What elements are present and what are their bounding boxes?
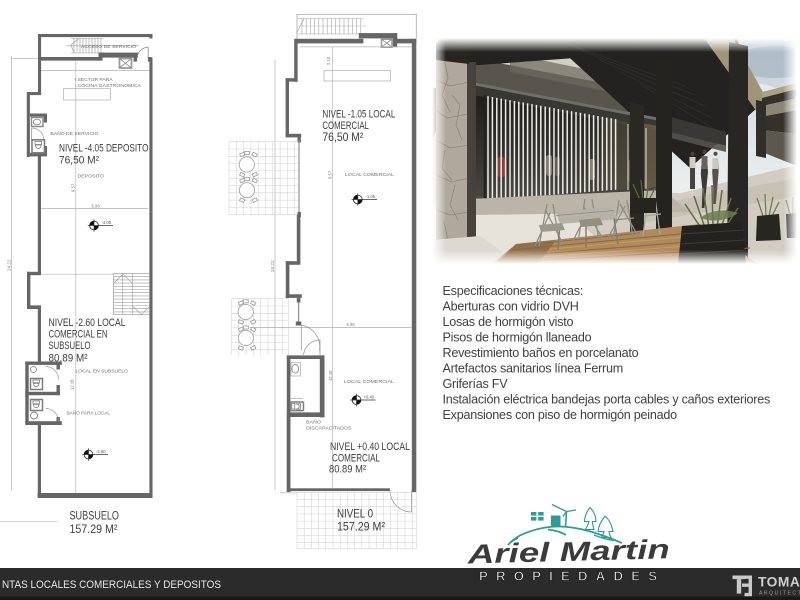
svg-text:+0.40: +0.40 [364,395,375,400]
svg-text:Aberturas con vidrio DVH: Aberturas con vidrio DVH [443,300,579,314]
svg-text:157.29 M²: 157.29 M² [337,520,385,534]
svg-text:SUBSUELO: SUBSUELO [49,340,91,352]
svg-text:-1.05: -1.05 [366,194,376,199]
svg-text:9.: 9. [75,78,78,82]
svg-text:BAÑO: BAÑO [306,419,322,425]
svg-text:NIVEL -2.60 LOCAL: NIVEL -2.60 LOCAL [49,317,126,329]
svg-text:COMERCIAL EN: COMERCIAL EN [49,328,108,340]
svg-text:Griferías FV: Griferías FV [443,377,509,391]
svg-text:NIVEL -4.05 DEPOSITO: NIVEL -4.05 DEPOSITO [59,143,149,155]
svg-text:9.57: 9.57 [328,170,333,179]
svg-text:76,50 M²: 76,50 M² [322,130,363,144]
svg-text:24.22: 24.22 [270,260,275,272]
svg-text:Especificaciones técnicas:: Especificaciones técnicas: [443,284,584,298]
svg-text:LOCAL COMERCIAL: LOCAL COMERCIAL [344,379,394,385]
svg-text:80.89 M²: 80.89 M² [329,463,366,475]
svg-text:DISCAPACITADOS: DISCAPACITADOS [306,426,352,431]
svg-text:24.22: 24.22 [7,259,12,271]
svg-text:157.29 M²: 157.29 M² [70,522,118,536]
svg-text:NIVEL +0.40 LOCAL: NIVEL +0.40 LOCAL [330,441,410,453]
svg-text:9.57: 9.57 [71,183,76,192]
svg-text:76,50 M²: 76,50 M² [59,154,99,166]
svg-text:NIVEL 0: NIVEL 0 [337,507,373,521]
svg-text:Expansiones con piso de hormig: Expansiones con piso de hormigón peinado [443,408,678,422]
svg-text:12.18: 12.18 [70,379,75,390]
svg-text:LOCAL EN SUBSUELO: LOCAL EN SUBSUELO [76,369,129,375]
svg-text:NTAS LOCALES COMERCIALES Y DEP: NTAS LOCALES COMERCIALES Y DEPOSITOS [2,579,221,591]
svg-text:Artefactos sanitarios línea Fe: Artefactos sanitarios línea Ferrum [443,362,623,376]
svg-text:7.: 7. [75,84,78,88]
svg-text:LOCAL COMERCIAL: LOCAL COMERCIAL [345,172,394,178]
svg-text:Instalación eléctrica bandejas: Instalación eléctrica bandejas porta cab… [443,393,771,407]
svg-text:Pisos de hormigón llaneado: Pisos de hormigón llaneado [443,331,592,345]
svg-text:DEPOSITO: DEPOSITO [78,174,105,180]
svg-text:5.98: 5.98 [92,203,101,208]
svg-text:Ariel Martin: Ariel Martin [466,534,670,569]
svg-text:TOMA: TOMA [758,575,800,590]
svg-text:-4.05: -4.05 [102,220,112,225]
svg-text:5.95: 5.95 [347,322,356,327]
svg-text:12.18: 12.18 [328,370,333,381]
svg-text:COCINA GASTRONOMICA: COCINA GASTRONOMICA [78,83,142,88]
svg-text:BAÑO DE SERVICIO: BAÑO DE SERVICIO [50,130,98,137]
svg-text:Losas de hormigón visto: Losas de hormigón visto [443,315,574,329]
svg-text:SUBSUELO: SUBSUELO [70,509,120,523]
svg-text:NIVEL -1.05 LOCAL: NIVEL -1.05 LOCAL [322,109,395,121]
svg-text:ARQUITECT: ARQUITECT [759,591,800,597]
svg-text:-2.60: -2.60 [96,449,106,454]
svg-text:ACCESO DE SERVICIO: ACCESO DE SERVICIO [81,44,136,50]
svg-text:2.10: 2.10 [326,56,331,65]
svg-text:Revestimiento baños en porcela: Revestimiento baños en porcelanato [443,346,639,360]
svg-text:BAÑO PARA LOCAL: BAÑO PARA LOCAL [67,410,111,417]
svg-text:SECTOR PARA: SECTOR PARA [78,77,113,82]
